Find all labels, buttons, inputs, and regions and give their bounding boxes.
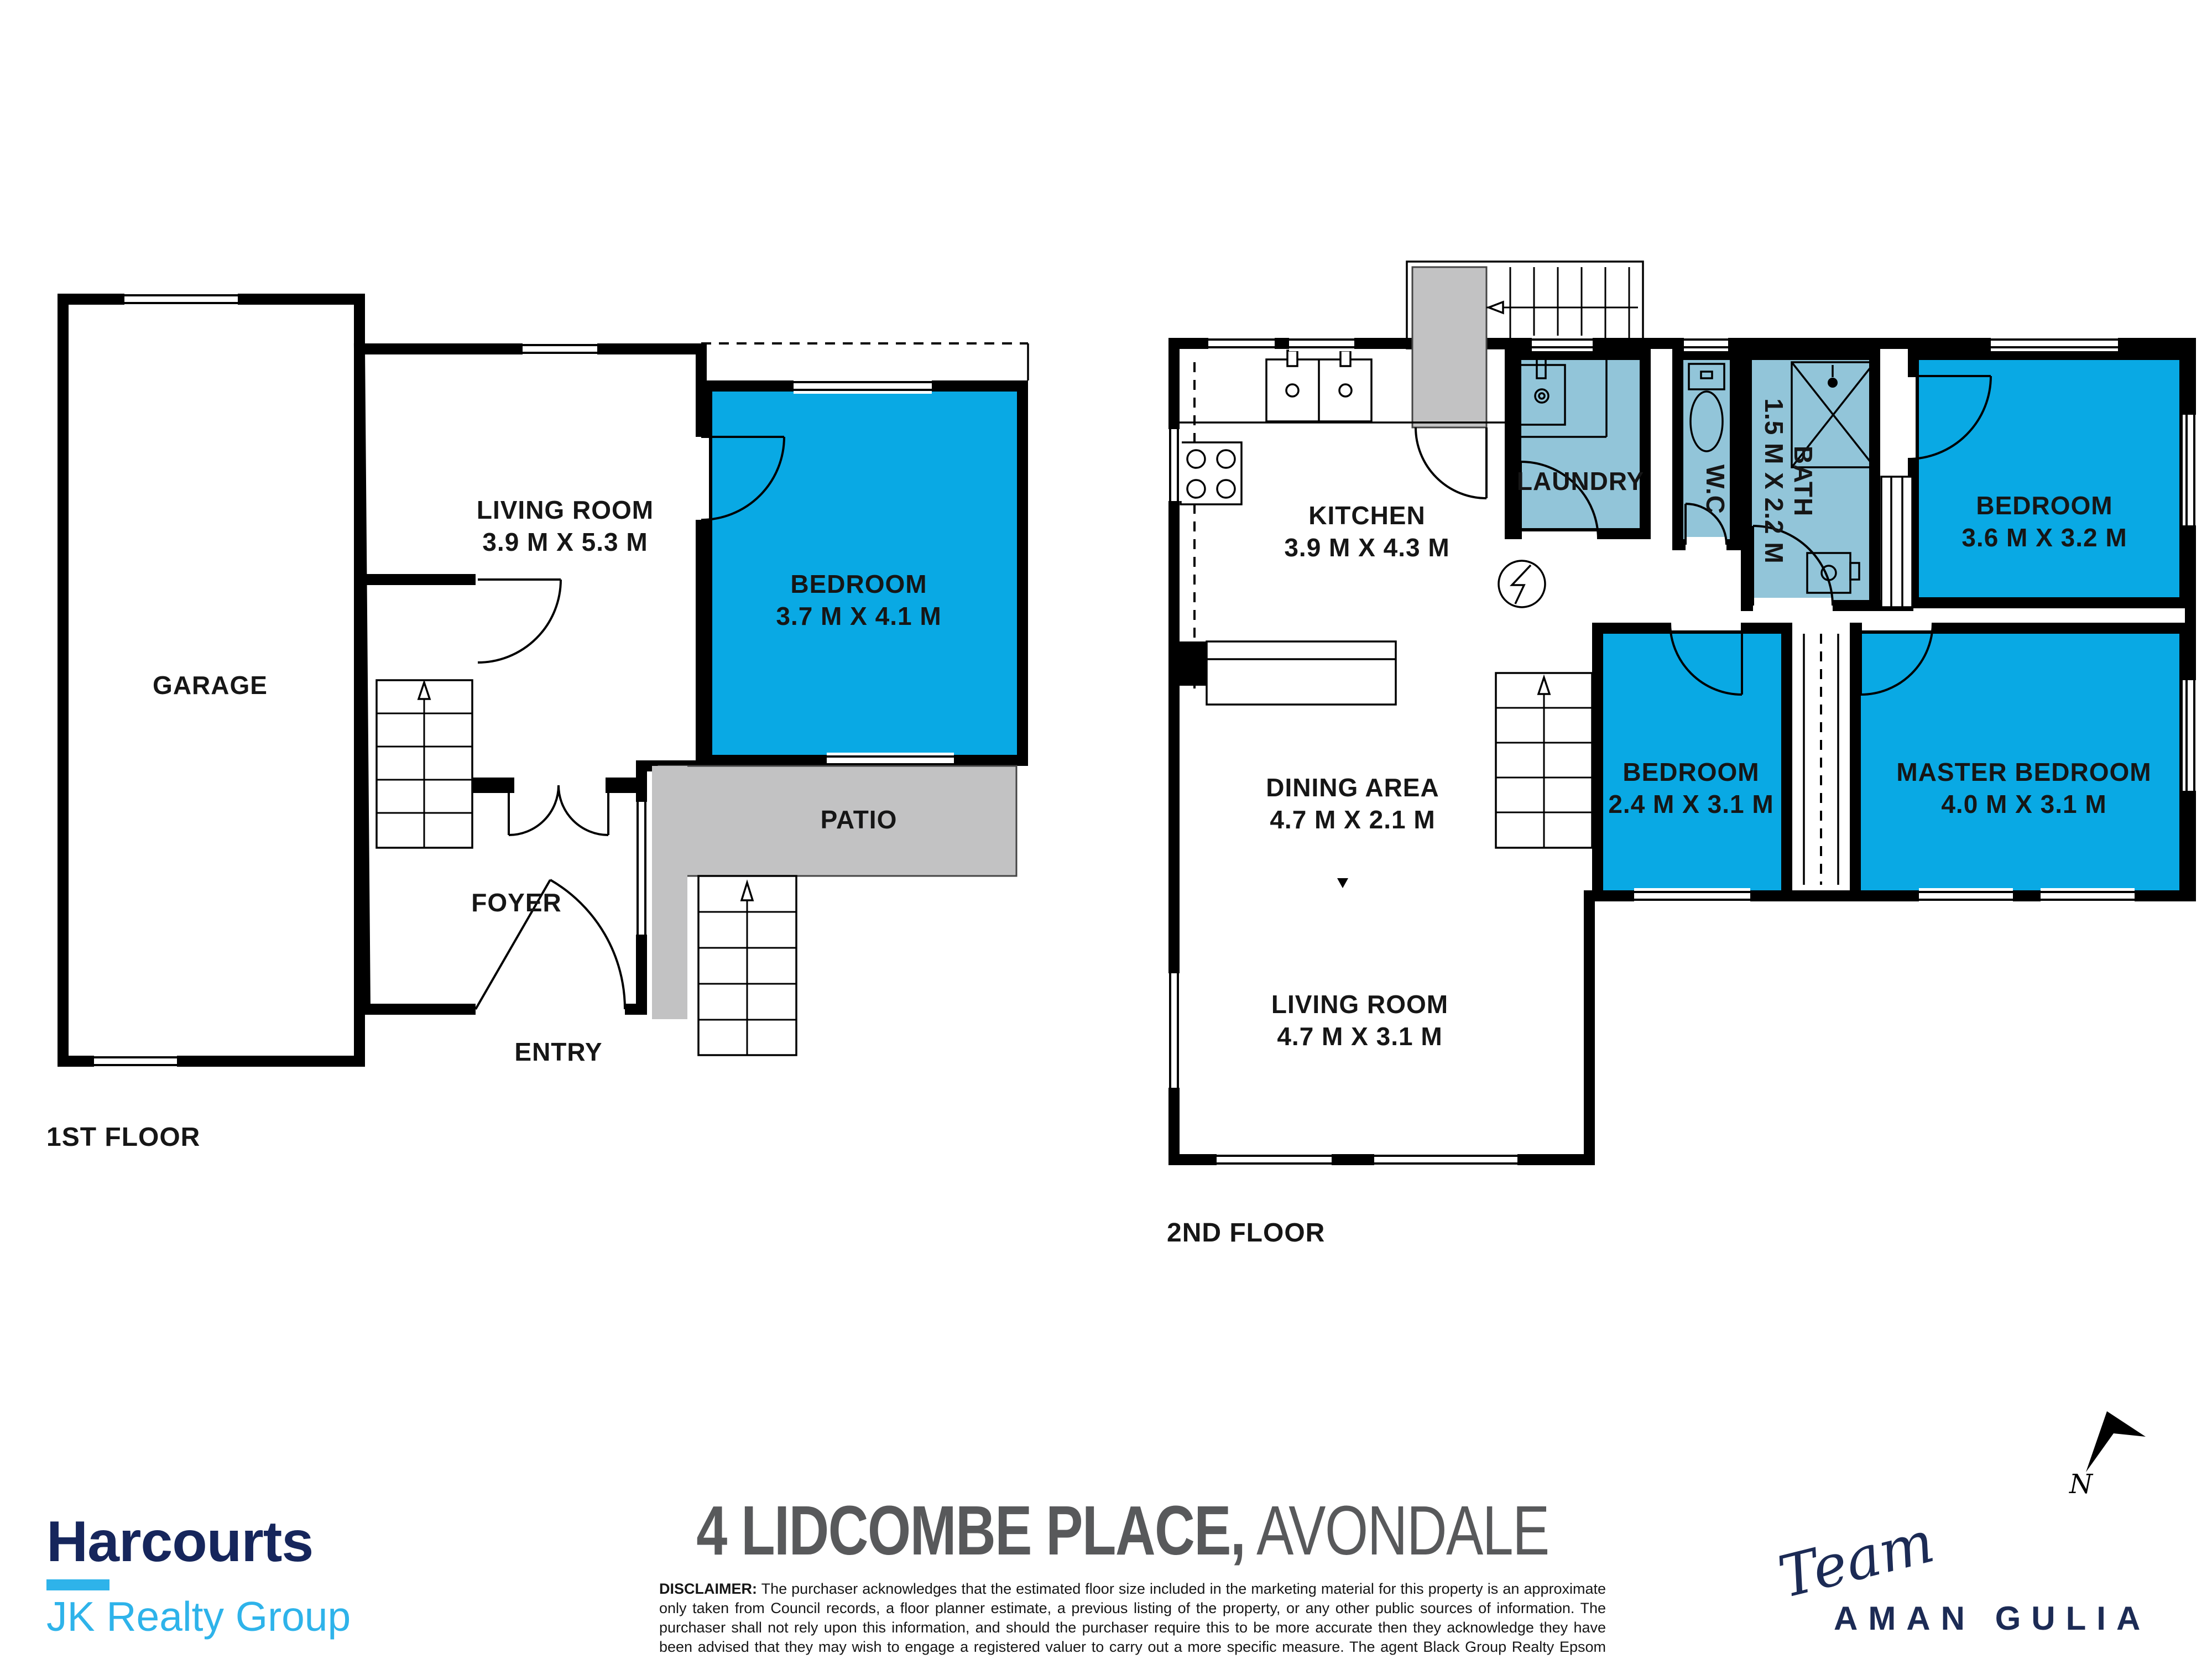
exterior-stairs-1f [698,876,796,1055]
property-address-title: 4 LIDCOMBE PLACE,AVONDALE [685,1496,1561,1566]
disclaimer-body: The purchaser acknowledges that the esti… [659,1580,1606,1659]
bedroom1-dims-2f: 3.6 M X 3.2 M [1961,523,2127,552]
kitchen-label: KITCHEN [1308,501,1425,530]
master-bedroom-label: MASTER BEDROOM [1896,758,2151,786]
master-bedroom-dims: 4.0 M X 3.1 M [1941,790,2106,818]
north-compass-icon: N [2069,1411,2146,1500]
disclaimer-text: DISCLAIMER: The purchaser acknowledges t… [659,1579,1606,1659]
kitchen-dims: 3.9 M X 4.3 M [1284,533,1449,562]
bedroom-label-1f: BEDROOM [790,570,927,598]
disclaimer-label: DISCLAIMER: [659,1580,757,1597]
master-bedroom-room [1855,615,2185,896]
compass-n-label: N [2069,1469,2094,1500]
address-suburb: AVONDALE [1256,1491,1549,1569]
second-floor-plan: KITCHEN 3.9 M X 4.3 M LAUNDRY W.C BATH 1… [1166,262,2198,1248]
harcourts-wordmark: Harcourts [46,1513,351,1571]
garage-label: GARAGE [153,671,268,700]
interior-stairs-2f [1496,673,1592,848]
living-label-1f: LIVING ROOM [477,495,654,524]
second-floor-caption: 2ND FLOOR [1167,1218,1325,1248]
harcourts-underline-bar [46,1579,109,1590]
harcourts-logo: Harcourts JK Realty Group [46,1513,351,1637]
agent-name: AMAN GULIA [1834,1599,2151,1637]
laundry-room [1516,354,1645,547]
bedroom2-dims-2f: 2.4 M X 3.1 M [1608,790,1773,818]
wc-room [1678,354,1735,552]
first-floor-caption: 1ST FLOOR [46,1123,200,1152]
bath-label: BATH [1789,446,1818,517]
bedroom-dims-1f: 3.7 M X 4.1 M [776,602,941,630]
living-dims-2f: 4.7 M X 3.1 M [1277,1022,1442,1051]
bedroom-room-1f [693,343,1028,768]
entry-label: ENTRY [514,1037,602,1066]
living-label-2f: LIVING ROOM [1271,990,1448,1019]
bedroom1-label-2f: BEDROOM [1976,491,2112,520]
bedroom1-room-2f [1881,354,2185,607]
dining-dims: 4.7 M X 2.1 M [1270,805,1435,834]
bath-dims: 1.5 M X 2.2 M [1760,398,1788,564]
foyer-label: FOYER [471,888,561,917]
address-street: 4 LIDCOMBE PLACE, [696,1491,1245,1569]
jk-realty-group-label: JK Realty Group [46,1596,351,1637]
laundry-label: LAUNDRY [1517,467,1644,495]
floorplan-page: GARAGE LIVING ROOM 3.9 M X 5.3 M BEDROOM… [0,0,2212,1659]
first-floor-plan: GARAGE LIVING ROOM 3.9 M X 5.3 M BEDROOM… [46,291,1028,1152]
wc-label: W.C [1701,465,1730,514]
living-dims-1f: 3.9 M X 5.3 M [482,528,648,556]
patio-label: PATIO [821,805,898,834]
bedroom2-room-2f [1598,615,1787,896]
bedroom2-label-2f: BEDROOM [1623,758,1759,786]
floorplan-drawing: GARAGE LIVING ROOM 3.9 M X 5.3 M BEDROOM… [0,0,2212,1659]
dining-label: DINING AREA [1266,773,1439,802]
